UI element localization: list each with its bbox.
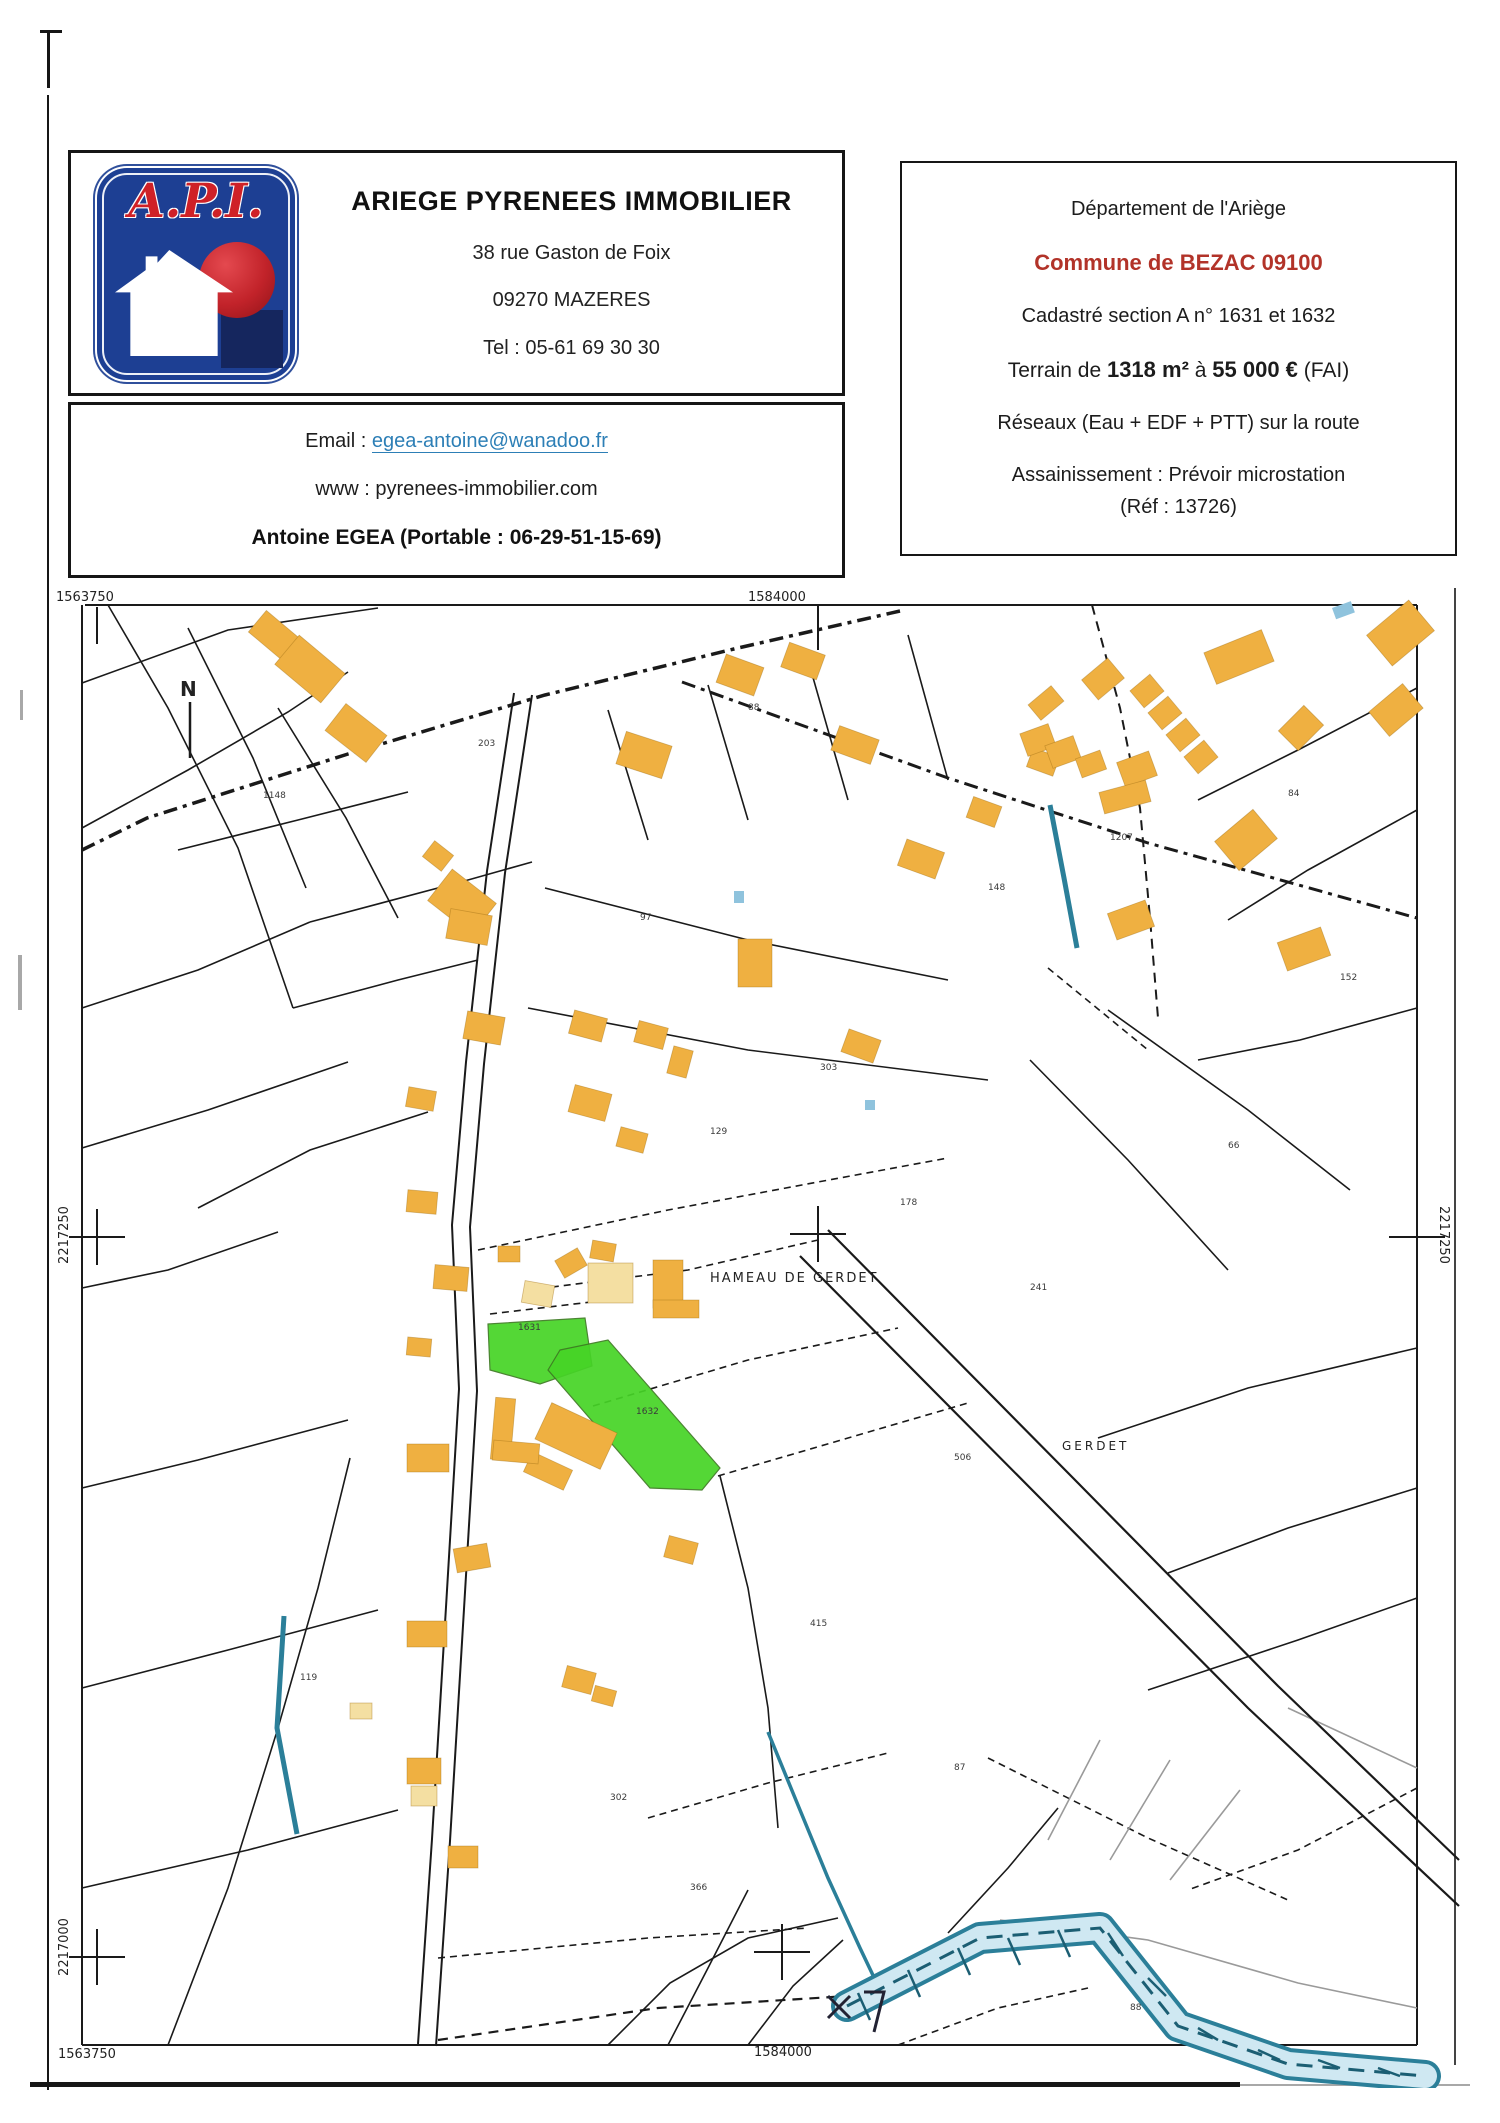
scan-mark bbox=[18, 955, 22, 1010]
building-footprint bbox=[588, 1263, 633, 1303]
property-reference: (Réf : 13726) bbox=[1120, 496, 1237, 519]
water-channel bbox=[277, 1616, 297, 1834]
www-value: pyrenees-immobilier.com bbox=[375, 478, 597, 500]
terrain-mid: à bbox=[1189, 359, 1212, 382]
building-footprint bbox=[831, 726, 879, 765]
parcel-number: 152 bbox=[1340, 973, 1357, 983]
email-link[interactable]: egea-antoine@wanadoo.fr bbox=[372, 430, 608, 453]
parcel-boundary-line bbox=[82, 1420, 348, 1488]
building-footprint bbox=[405, 1087, 436, 1112]
property-commune: Commune de BEZAC 09100 bbox=[1034, 250, 1323, 276]
parcel-boundary-line bbox=[198, 1112, 428, 1208]
terrain-area: 1318 m² bbox=[1107, 357, 1189, 382]
property-box: Département de l'Ariège Commune de BEZAC… bbox=[900, 161, 1457, 556]
parcel-number: 148 bbox=[988, 883, 1005, 893]
building-footprint bbox=[590, 1240, 617, 1262]
parcel-boundary-line bbox=[82, 672, 348, 828]
parcel-boundary-line bbox=[1048, 1740, 1100, 1840]
parcel-boundary-line bbox=[1168, 1488, 1417, 1573]
road-line bbox=[82, 611, 900, 850]
parcel-boundary-line bbox=[748, 1940, 843, 2045]
building-footprint bbox=[350, 1703, 372, 1719]
parcel-number: 1632 bbox=[636, 1407, 659, 1417]
road-line bbox=[828, 1230, 1459, 1860]
road-line bbox=[438, 1996, 848, 2040]
api-logo-text: A.P.I. bbox=[97, 174, 295, 229]
parcel-number: 129 bbox=[710, 1127, 727, 1137]
map-label: 1563750 bbox=[58, 2047, 116, 2062]
parcel-boundary-line bbox=[82, 1610, 378, 1688]
building-footprint bbox=[407, 1758, 441, 1784]
parcel-boundary-line bbox=[1110, 1760, 1170, 1860]
pond bbox=[734, 891, 744, 903]
building-footprint bbox=[406, 1337, 431, 1357]
building-footprint bbox=[1215, 809, 1278, 870]
parcel-boundary-line bbox=[478, 1158, 948, 1250]
agency-box: A.P.I. ARIEGE PYRENEES IMMOBILIER 38 rue… bbox=[68, 150, 845, 396]
building-footprint bbox=[521, 1281, 554, 1308]
parcel-number: 303 bbox=[820, 1063, 837, 1073]
property-cadastre: Cadastré section A n° 1631 et 1632 bbox=[1022, 305, 1336, 328]
parcel-number: 178 bbox=[900, 1198, 917, 1208]
building-footprint bbox=[1369, 684, 1423, 737]
building-footprint bbox=[1367, 600, 1435, 666]
building-footprint bbox=[407, 1621, 447, 1647]
page-corner-mark-horizontal bbox=[40, 30, 62, 33]
building-footprint bbox=[653, 1300, 699, 1318]
building-footprint bbox=[667, 1046, 694, 1078]
agency-city: 09270 MAZERES bbox=[493, 289, 651, 312]
map-label: HAMEAU DE GERDET bbox=[710, 1271, 878, 1286]
parcel-boundary-line bbox=[1188, 1788, 1417, 1890]
building-footprint bbox=[1166, 718, 1200, 752]
contact-box: Email : egea-antoine@wanadoo.fr www : py… bbox=[68, 402, 845, 578]
parcel-number: 66 bbox=[1228, 1141, 1240, 1151]
scanned-listing-page: A.P.I. ARIEGE PYRENEES IMMOBILIER 38 rue… bbox=[0, 0, 1500, 2123]
building-footprint bbox=[616, 731, 672, 778]
agency-address: 38 rue Gaston de Foix bbox=[473, 242, 671, 265]
parcel-boundary-line bbox=[1030, 1060, 1228, 1270]
parcel-boundary-line bbox=[82, 1232, 278, 1288]
parcel-boundary-line bbox=[1170, 1790, 1240, 1880]
map-label: N bbox=[180, 677, 197, 701]
cadastral-map: 1148203881488415212079712930317824116311… bbox=[48, 588, 1473, 2088]
building-footprint bbox=[448, 1846, 478, 1868]
api-logo: A.P.I. bbox=[97, 168, 295, 380]
agency-text-block: ARIEGE PYRENEES IMMOBILIER 38 rue Gaston… bbox=[309, 153, 834, 393]
building-footprint bbox=[498, 1246, 520, 1262]
building-footprint bbox=[568, 1010, 607, 1042]
property-department: Département de l'Ariège bbox=[1071, 198, 1286, 221]
parcel-boundary-line bbox=[720, 1476, 778, 1828]
parcel-number: 415 bbox=[810, 1619, 827, 1629]
parcel-boundary-line bbox=[82, 922, 310, 1008]
parcel-number: 119 bbox=[300, 1673, 317, 1683]
building-footprint bbox=[1184, 740, 1218, 774]
building-footprint bbox=[591, 1685, 616, 1706]
map-label: GERDET bbox=[1062, 1439, 1129, 1453]
parcel-boundary-line bbox=[293, 960, 478, 1008]
parcel-boundary-line bbox=[1098, 1348, 1417, 1438]
building-footprint bbox=[897, 839, 944, 879]
parcel-number: 1207 bbox=[1110, 833, 1133, 843]
map-label: 2217250 bbox=[57, 1206, 72, 1264]
parcel-number: 88 bbox=[748, 703, 760, 713]
map-label: 2217250 bbox=[1436, 1206, 1451, 1264]
parcel-number: 1148 bbox=[263, 791, 286, 801]
agency-name: ARIEGE PYRENEES IMMOBILIER bbox=[351, 186, 792, 217]
map-label: 2217000 bbox=[57, 1918, 72, 1976]
building-footprint bbox=[407, 1444, 449, 1472]
website-line: www : pyrenees-immobilier.com bbox=[315, 478, 597, 501]
building-footprint bbox=[966, 797, 1002, 828]
parcel-number: 88 bbox=[1130, 2003, 1142, 2013]
map-label: 1584000 bbox=[754, 2045, 812, 2060]
pond bbox=[1332, 601, 1355, 619]
building-footprint bbox=[555, 1248, 588, 1278]
parcel-number: 366 bbox=[690, 1883, 707, 1893]
agent-line: Antoine EGEA (Portable : 06-29-51-15-69) bbox=[252, 526, 662, 550]
building-footprint bbox=[738, 939, 772, 987]
parcel-boundary-line bbox=[988, 1758, 1288, 1900]
building-footprint bbox=[716, 654, 764, 696]
property-terrain: Terrain de 1318 m² à 55 000 € (FAI) bbox=[1008, 357, 1350, 383]
building-footprint bbox=[422, 841, 453, 872]
building-footprint bbox=[562, 1665, 597, 1694]
parcel-number: 1631 bbox=[518, 1323, 541, 1333]
building-footprint bbox=[433, 1265, 469, 1292]
agency-phone: Tel : 05-61 69 30 30 bbox=[483, 337, 660, 360]
building-footprint bbox=[1277, 927, 1330, 971]
building-footprint bbox=[1117, 751, 1158, 787]
building-footprint bbox=[1148, 696, 1182, 730]
api-logo-dark-corner bbox=[221, 310, 283, 368]
parcel-number: 241 bbox=[1030, 1283, 1047, 1293]
parcel-boundary-line bbox=[168, 1458, 350, 2045]
parcel-boundary-line bbox=[82, 1062, 348, 1148]
parcel-number: 84 bbox=[1288, 789, 1300, 799]
parcel-boundary-line bbox=[908, 635, 948, 780]
building-footprint bbox=[325, 704, 387, 763]
parcel-boundary-line bbox=[898, 1988, 1088, 2045]
parcel-boundary-line bbox=[1198, 1008, 1417, 1060]
email-line: Email : egea-antoine@wanadoo.fr bbox=[305, 430, 608, 453]
road-line bbox=[800, 1256, 1459, 1906]
parcel-boundary-line bbox=[648, 1753, 888, 1818]
parcel-number: 506 bbox=[954, 1453, 971, 1463]
property-sanitation: Assainissement : Prévoir microstation bbox=[1012, 464, 1345, 487]
terrain-price: 55 000 € bbox=[1212, 357, 1298, 382]
building-footprint bbox=[1082, 658, 1125, 700]
building-footprint bbox=[1130, 674, 1164, 708]
parcel-boundary-line bbox=[718, 1403, 968, 1476]
building-footprint bbox=[406, 1190, 438, 1215]
building-footprint bbox=[1107, 900, 1154, 940]
terrain-prefix: Terrain de bbox=[1008, 359, 1107, 382]
building-footprint bbox=[453, 1543, 491, 1573]
property-networks: Réseaux (Eau + EDF + PTT) sur la route bbox=[997, 412, 1359, 435]
parcel-number: 302 bbox=[610, 1793, 627, 1803]
parcel-boundary-line bbox=[1148, 1598, 1417, 1690]
parcel-number: 87 bbox=[954, 1763, 965, 1773]
parcel-boundary-line bbox=[178, 792, 408, 850]
building-footprint bbox=[492, 1440, 540, 1464]
building-footprint bbox=[1278, 705, 1323, 750]
building-footprint bbox=[1028, 686, 1064, 721]
water-channel bbox=[1050, 805, 1077, 948]
page-corner-mark-vertical bbox=[47, 30, 50, 88]
www-label: www : bbox=[315, 478, 369, 500]
building-footprint bbox=[634, 1020, 669, 1049]
building-footprint bbox=[616, 1127, 648, 1154]
building-footprint bbox=[1204, 630, 1274, 685]
parcel-boundary-line bbox=[948, 1808, 1058, 1933]
parcel-boundary-line bbox=[708, 685, 748, 820]
parcel-boundary-line bbox=[310, 862, 532, 922]
building-footprint bbox=[1099, 780, 1151, 814]
pond bbox=[865, 1100, 875, 1110]
scan-mark bbox=[20, 690, 23, 720]
building-footprint bbox=[841, 1029, 881, 1063]
parcel-boundary-line bbox=[1048, 968, 1148, 1050]
parcel-boundary-line bbox=[668, 1890, 748, 2045]
email-label: Email : bbox=[305, 430, 366, 452]
terrain-suffix: (FAI) bbox=[1298, 359, 1349, 382]
parcel-boundary-line bbox=[438, 1928, 808, 1958]
map-label: 1584000 bbox=[748, 590, 806, 605]
building-footprint bbox=[463, 1011, 505, 1045]
parcel-boundary-line bbox=[608, 710, 648, 840]
parcel-number: 203 bbox=[478, 739, 495, 749]
building-footprint bbox=[568, 1085, 612, 1122]
parcel-boundary-line bbox=[108, 605, 293, 1008]
building-footprint bbox=[411, 1786, 437, 1806]
parcel-number: 97 bbox=[640, 913, 651, 923]
map-label: 1563750 bbox=[56, 590, 114, 605]
building-footprint bbox=[664, 1535, 699, 1564]
